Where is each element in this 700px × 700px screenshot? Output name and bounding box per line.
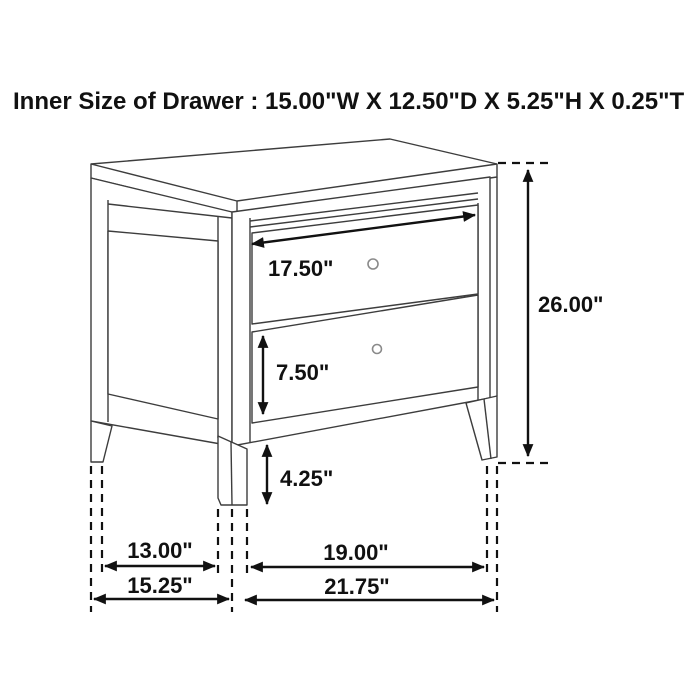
drawer-opening-width-label: 17.50" [268,256,333,281]
dimension-floor-clearance: 4.25" [267,445,333,504]
dimension-side-depth-overall: 15.25" [94,573,229,599]
dimension-side-leg-span-inner: 13.00" [105,538,215,566]
page-title: Inner Size of Drawer : 15.00"W X 12.50"D… [13,88,693,116]
floor-clearance-label: 4.25" [280,466,333,491]
bottom-drawer-knob [373,345,382,354]
front-right-leg [466,396,497,460]
top-drawer-knob [368,259,378,269]
side-depth-overall-label: 15.25" [127,573,192,598]
front-leg-span-inner-label: 19.00" [323,540,388,565]
overall-width-label: 21.75" [324,574,389,599]
bottom-drawer-height-label: 7.50" [276,360,329,385]
side-leg-span-inner-label: 13.00" [127,538,192,563]
dimension-diagram: Inner Size of Drawer : 15.00"W X 12.50"D… [0,0,700,700]
overall-height-label: 26.00" [538,292,603,317]
left-side-panel [91,178,232,446]
nightstand-drawing [91,139,497,505]
dimension-front-leg-span-inner: 19.00" [251,540,484,567]
dimension-overall-width: 21.75" [245,574,494,600]
dimension-overall-height: 26.00" [528,170,603,456]
back-left-leg [91,421,112,462]
